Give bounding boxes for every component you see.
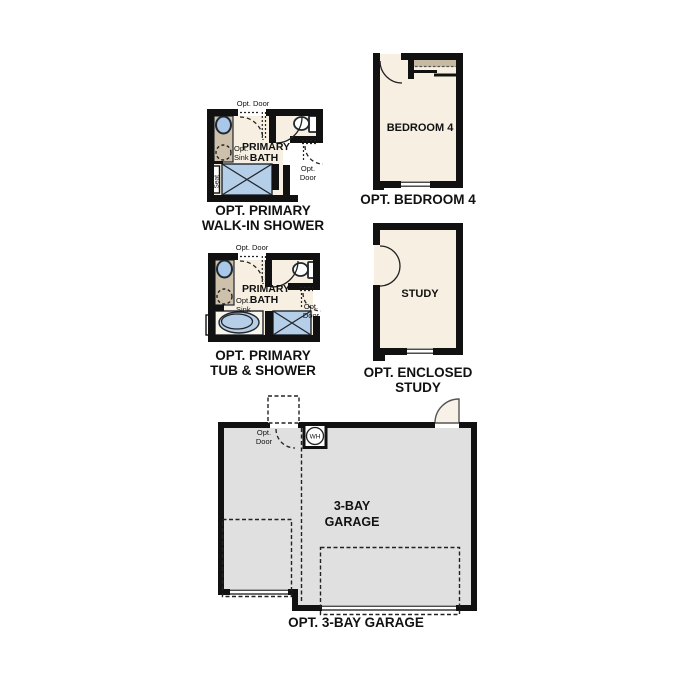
opt-sink-label-line2: Sink: [236, 305, 251, 314]
opt-door-right-swing: [305, 146, 323, 164]
toilet-tank: [309, 116, 317, 132]
floor: [380, 54, 456, 181]
window: [407, 349, 433, 353]
garage-door-opening-left: [230, 590, 288, 594]
opt-door-label-line2: Door: [256, 437, 273, 446]
plan-title-line1: OPT. PRIMARY: [215, 203, 311, 218]
opt-sink-label-line1: Opt.: [234, 144, 248, 153]
room-label: BEDROOM 4: [387, 122, 455, 134]
opt-door-frame-dashed: [268, 396, 299, 423]
plan-title-line1: OPT. PRIMARY: [215, 348, 311, 363]
room-label-line2: GARAGE: [325, 515, 380, 529]
plan-title-line2: TUB & SHOWER: [210, 363, 316, 378]
plan-tub-shower: Opt. Door PRIMARY BATH Opt. Sink Opt. Do…: [206, 243, 321, 378]
opt-door-right-label-line2: Door: [300, 173, 317, 182]
plan-title-line2: STUDY: [395, 380, 441, 395]
plan-title-line1: OPT. ENCLOSED: [364, 365, 473, 380]
opt-door-right-jamb: [302, 141, 316, 163]
opt-door-right-label-line2: Door: [303, 311, 320, 320]
sink-fixture: [217, 261, 232, 278]
plan-walkin-shower: Opt. Door PRIMARY BATH Opt. Sink Seat Op…: [202, 99, 324, 233]
floorplan-svg: Opt. Door PRIMARY BATH Opt. Sink Seat Op…: [0, 0, 687, 687]
opt-sink-label-line1: Opt.: [236, 296, 250, 305]
plan-garage: WH Opt. Door 3-BAY GARAGE OPT. 3-BAY GAR…: [218, 396, 477, 630]
room-label: STUDY: [401, 288, 439, 300]
plan-study: STUDY OPT. ENCLOSED STUDY: [364, 223, 473, 395]
opt-door-right-label-line1: Opt.: [301, 164, 315, 173]
garage-door-opening-right: [322, 606, 456, 610]
window: [401, 182, 430, 186]
closet-door-panel-2: [434, 74, 457, 77]
opt-door-right-label-line1: Opt.: [304, 302, 318, 311]
closet-door-panel-1: [413, 70, 437, 73]
seat-label: Seat: [214, 175, 221, 189]
floorplan-canvas: Opt. Door PRIMARY BATH Opt. Sink Seat Op…: [0, 0, 687, 687]
room-label-line1: 3-BAY: [334, 499, 371, 513]
opt-door-top-label: Opt. Door: [237, 99, 270, 108]
plan-bedroom4: BEDROOM 4 OPT. BEDROOM 4: [360, 53, 476, 207]
opt-sink-label-line2: Sink: [234, 153, 249, 162]
plan-title: OPT. 3-BAY GARAGE: [288, 615, 424, 630]
sink-fixture: [216, 117, 231, 134]
water-heater-label: WH: [310, 434, 321, 441]
room-label-line2: BATH: [250, 152, 278, 164]
opt-door-top-label: Opt. Door: [236, 243, 269, 252]
plan-title-line2: WALK-IN SHOWER: [202, 218, 324, 233]
room-label-line2: BATH: [250, 294, 278, 306]
opt-door-label-line1: Opt.: [257, 428, 271, 437]
entry-door-leaf: [435, 399, 459, 423]
plan-title: OPT. BEDROOM 4: [360, 192, 476, 207]
